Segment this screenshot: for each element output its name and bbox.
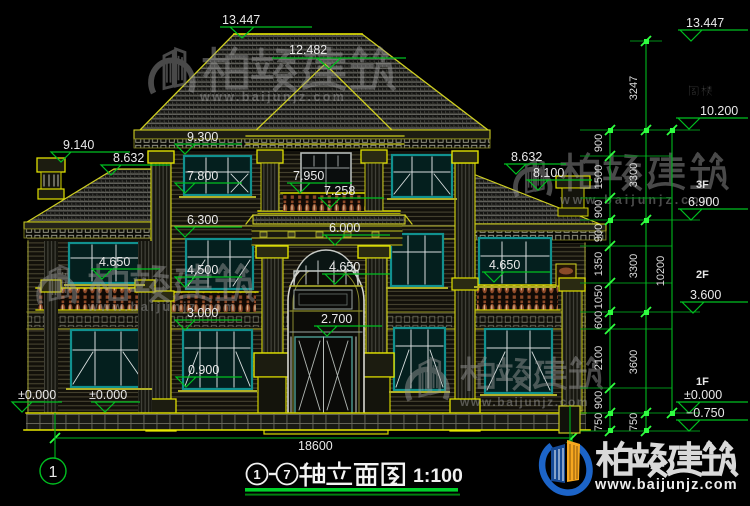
svg-text:3600: 3600 [628, 350, 640, 374]
svg-text:9.140: 9.140 [63, 138, 94, 152]
svg-text:2.700: 2.700 [321, 312, 352, 326]
svg-text:900: 900 [593, 391, 605, 409]
svg-text:600: 600 [593, 311, 605, 329]
svg-text:1F: 1F [696, 376, 709, 388]
svg-text:13.447: 13.447 [222, 13, 260, 27]
svg-text:7.258: 7.258 [324, 184, 355, 198]
svg-text:900: 900 [593, 200, 605, 218]
svg-text:2F: 2F [696, 269, 709, 281]
svg-text:4.500: 4.500 [187, 263, 218, 277]
svg-text:6.000: 6.000 [329, 221, 360, 235]
svg-text:3.600: 3.600 [690, 288, 721, 302]
svg-text:±0.000: ±0.000 [18, 388, 56, 402]
svg-text:1:100: 1:100 [413, 465, 463, 487]
svg-text:3247: 3247 [628, 76, 640, 100]
svg-text:10200: 10200 [655, 256, 667, 287]
svg-text:7.950: 7.950 [293, 169, 324, 183]
svg-text:7.800: 7.800 [187, 169, 218, 183]
svg-text:10.200: 10.200 [700, 104, 738, 118]
svg-text:4.650: 4.650 [99, 255, 130, 269]
svg-text:1500: 1500 [593, 165, 605, 189]
svg-text:1050: 1050 [593, 285, 605, 309]
svg-text:18600: 18600 [298, 439, 333, 453]
svg-text:7: 7 [283, 467, 290, 482]
svg-text:1: 1 [49, 464, 58, 481]
svg-text:4.650: 4.650 [329, 260, 360, 274]
svg-text:12.482: 12.482 [289, 43, 327, 57]
svg-text:13.447: 13.447 [686, 16, 724, 30]
svg-text:3F: 3F [696, 179, 709, 191]
svg-text:750: 750 [593, 413, 605, 431]
svg-text:3300: 3300 [628, 163, 640, 187]
svg-text:±0.000: ±0.000 [684, 388, 722, 402]
svg-text:9.300: 9.300 [187, 130, 218, 144]
svg-text:900: 900 [593, 134, 605, 152]
svg-text:2100: 2100 [593, 346, 605, 370]
svg-text:8.100: 8.100 [533, 166, 564, 180]
svg-text:3.000: 3.000 [187, 306, 218, 320]
svg-text:www.baijunjz.com: www.baijunjz.com [199, 90, 346, 104]
svg-text:3300: 3300 [628, 254, 640, 278]
svg-text:±0.000: ±0.000 [89, 388, 127, 402]
svg-text:750: 750 [628, 413, 640, 431]
svg-text:8.632: 8.632 [113, 151, 144, 165]
svg-text:1: 1 [253, 467, 260, 482]
svg-text:4.650: 4.650 [489, 258, 520, 272]
svg-text:−0.750: −0.750 [686, 406, 725, 420]
svg-text:6.300: 6.300 [187, 213, 218, 227]
svg-text:8.632: 8.632 [511, 150, 542, 164]
svg-text:www.baijunjz.com: www.baijunjz.com [594, 477, 738, 493]
svg-text:1350: 1350 [593, 252, 605, 276]
svg-text:0.900: 0.900 [188, 363, 219, 377]
svg-text:6.900: 6.900 [688, 195, 719, 209]
svg-text:900: 900 [593, 224, 605, 242]
